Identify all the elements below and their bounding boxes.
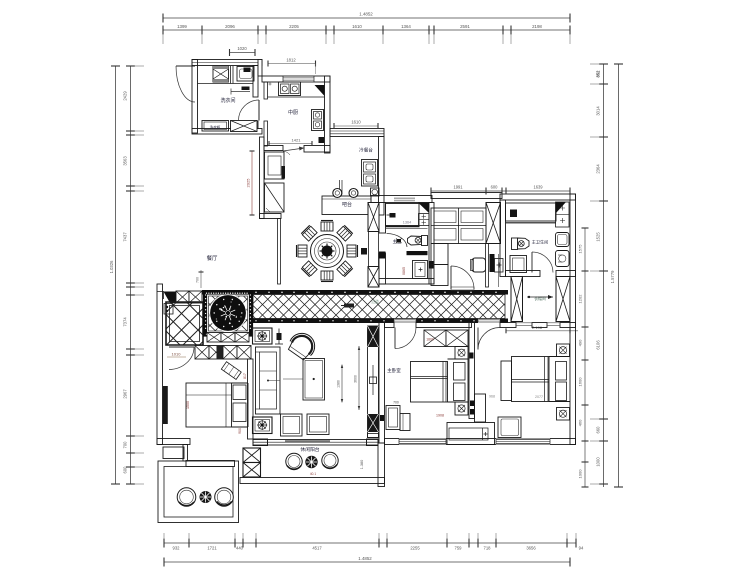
svg-text:2364: 2364 — [596, 164, 601, 174]
svg-text:718: 718 — [484, 546, 492, 551]
svg-text:700: 700 — [196, 277, 200, 283]
svg-text:1812: 1812 — [286, 58, 296, 63]
svg-text:700: 700 — [123, 441, 128, 449]
svg-text:2198: 2198 — [532, 24, 542, 29]
svg-text:1500: 1500 — [186, 401, 190, 409]
svg-text:817: 817 — [243, 373, 247, 379]
svg-text:1.0326: 1.0326 — [109, 260, 114, 273]
svg-text:1639: 1639 — [533, 185, 543, 190]
svg-text:1800: 1800 — [426, 338, 434, 342]
svg-text:餐厅: 餐厅 — [207, 254, 218, 262]
svg-text:洗衣间: 洗衣间 — [220, 97, 235, 104]
svg-text:1399: 1399 — [177, 24, 187, 29]
svg-text:1364: 1364 — [401, 24, 411, 29]
svg-text:600: 600 — [491, 185, 499, 190]
svg-text:3563: 3563 — [123, 156, 128, 166]
svg-text:3656: 3656 — [526, 546, 536, 551]
svg-text:440: 440 — [236, 546, 244, 551]
svg-text:600: 600 — [123, 466, 128, 474]
svg-text:40.1: 40.1 — [310, 472, 316, 476]
svg-text:2255: 2255 — [410, 546, 420, 551]
svg-text:1.4852: 1.4852 — [358, 556, 372, 561]
svg-text:2077: 2077 — [535, 395, 543, 399]
svg-text:1908: 1908 — [436, 414, 444, 418]
svg-text:2205: 2205 — [289, 24, 299, 29]
svg-text:1991: 1991 — [453, 185, 463, 190]
svg-text:主卫生间: 主卫生间 — [532, 239, 549, 246]
svg-text:休闲阳台: 休闲阳台 — [300, 446, 319, 453]
svg-text:1.5779: 1.5779 — [610, 270, 615, 283]
svg-text:0865: 0865 — [402, 267, 406, 275]
svg-text:1380: 1380 — [337, 380, 341, 388]
svg-text:94: 94 — [579, 546, 584, 551]
svg-text:吧台: 吧台 — [342, 201, 352, 208]
svg-text:490: 490 — [578, 339, 583, 346]
svg-text:1575: 1575 — [578, 244, 583, 254]
svg-text:3600: 3600 — [354, 375, 358, 383]
svg-text:7374: 7374 — [123, 317, 128, 327]
svg-text:1020: 1020 — [237, 46, 247, 51]
svg-text:2429: 2429 — [123, 91, 128, 101]
svg-text:4517: 4517 — [312, 546, 322, 551]
svg-text:1000: 1000 — [578, 469, 583, 479]
svg-text:3014: 3014 — [596, 106, 601, 116]
svg-text:759: 759 — [455, 546, 463, 551]
svg-text:1010: 1010 — [172, 352, 182, 357]
svg-text:1000: 1000 — [596, 457, 601, 467]
svg-text:968: 968 — [489, 395, 495, 399]
svg-text:1610: 1610 — [351, 120, 361, 125]
svg-text:660: 660 — [596, 426, 601, 434]
svg-text:1.380: 1.380 — [360, 460, 364, 470]
svg-text:中厨: 中厨 — [288, 109, 298, 116]
svg-text:700: 700 — [393, 401, 399, 405]
svg-text:1364: 1364 — [403, 221, 411, 225]
svg-text:1202: 1202 — [578, 294, 583, 304]
svg-text:7437: 7437 — [123, 232, 128, 242]
svg-text:主卧室: 主卧室 — [387, 367, 401, 374]
svg-text:460: 460 — [578, 419, 583, 426]
svg-text:过道: 过道 — [371, 299, 379, 304]
svg-text:1421: 1421 — [292, 138, 302, 143]
svg-text:1610: 1610 — [352, 24, 362, 29]
svg-text:2591: 2591 — [460, 24, 470, 29]
svg-text:洗衣柜: 洗衣柜 — [210, 125, 221, 130]
svg-text:6106: 6106 — [596, 340, 601, 350]
svg-text:852: 852 — [596, 70, 601, 78]
svg-text:900: 900 — [238, 428, 242, 434]
svg-text:2025: 2025 — [246, 178, 251, 188]
svg-text:1721: 1721 — [207, 546, 217, 551]
svg-text:2096: 2096 — [225, 24, 235, 29]
svg-text:1525: 1525 — [596, 232, 601, 242]
svg-text:1.4852: 1.4852 — [359, 12, 373, 17]
svg-text:932: 932 — [173, 546, 181, 551]
svg-text:冷餐台: 冷餐台 — [359, 147, 373, 154]
svg-text:1600: 1600 — [578, 377, 583, 387]
svg-text:2967: 2967 — [123, 389, 128, 399]
